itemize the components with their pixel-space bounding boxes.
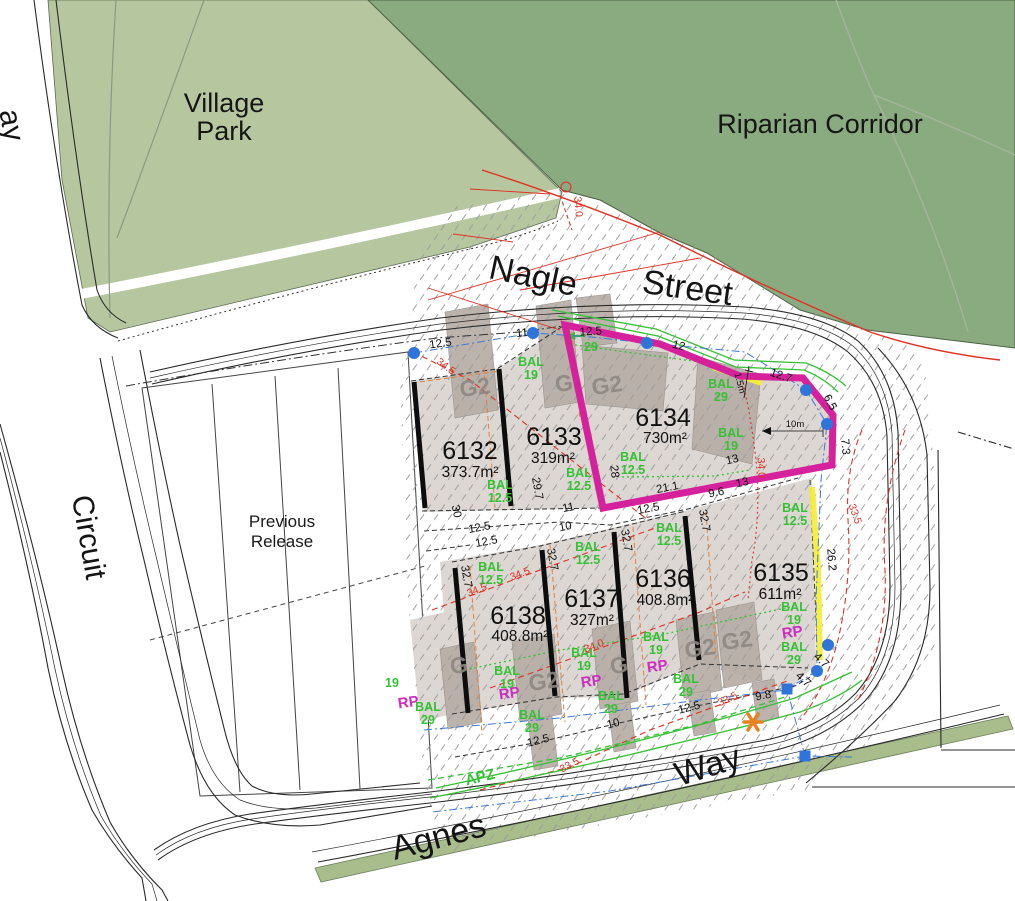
rp-label: RP [781,623,804,643]
lot-6134-number: 6134 [635,404,691,432]
bal-rating-label: BAL [487,478,513,492]
lot-6133-number: 6133 [526,423,582,451]
g2-envelope-label: G2 [458,372,492,402]
lot-6136-area: 408.8m² [637,592,694,609]
bal-rating-value: 29 [604,702,618,716]
survey-point-dot [527,327,539,339]
bal-rating-value: 29 [584,340,598,354]
bal-rating-label: BAL [656,521,682,535]
dimension-label: 12.5 [579,325,602,338]
bal-rating-label: BAL [781,600,807,614]
bal-rating-value: 29 [714,390,728,404]
bal-rating-label: BAL [782,501,808,515]
previous-release-label: Previous [249,512,315,531]
bal-rating-label: BAL [494,664,520,678]
bal-rating-value: 12.5 [783,514,807,528]
bal-rating-label: BAL [673,672,699,686]
lot-6137-number: 6137 [564,585,620,613]
survey-point-dot [821,418,833,430]
lot-6132-number: 6132 [442,437,498,465]
bal-rating-value: 19 [724,439,738,453]
bal-rating-value: 19 [649,643,663,657]
bal-rating-label: BAL [519,708,545,722]
dimension-label: 26.2 [824,548,838,571]
dimension-label: 7.3 [838,438,851,455]
rp-label: RP [498,684,521,704]
circuit-street-label: Circuit [65,493,112,583]
survey-point-dot [822,639,834,651]
bal-rating-label: BAL [718,426,744,440]
lot-6138-number: 6138 [490,602,546,630]
dimension-label: 10 [558,520,573,534]
street-fragment-label: ay [0,107,31,144]
bal-rating-label: BAL [643,630,669,644]
g2-envelope-label: G2 [590,370,624,400]
bal-rating-label: BAL [598,689,624,703]
village-park-label: Park [196,116,252,146]
g2-envelope-label: G [448,651,469,679]
dimension-label: 28 [607,465,620,479]
bal-rating-value: 12.5 [488,491,512,505]
lot-6134-area: 730m² [643,430,687,447]
contour-level-label: 34.0 [754,457,767,478]
bal-rating-value: 12.5 [567,479,591,493]
bal-rating-value: 12.5 [621,463,645,477]
bal-rating-value: 29 [421,713,435,727]
bal-rating-value: 12.5 [657,534,681,548]
g2-envelope-label: G [608,651,629,679]
bal-rating-value: 29 [679,685,693,699]
village-park-label: Village [184,88,265,118]
bal-rating-value: 19 [385,676,399,690]
survey-point-dot [641,337,653,349]
bal-rating-label: BAL [620,450,646,464]
survey-point-square [800,751,811,762]
bal-rating-label: BAL [566,466,592,480]
dim-10m-label: 10m [786,419,805,430]
survey-point-dot [408,347,420,359]
bal-rating-label: BAL [575,540,601,554]
g2-envelope-label: G [553,369,574,397]
bal-rating-label: BAL [518,355,544,369]
previous-release-label: Release [251,532,313,551]
g2-envelope-label: G2 [683,633,717,663]
rp-label: RP [397,693,420,713]
bal-rating-value: 29 [787,653,801,667]
bal-rating-value: 29 [525,721,539,735]
survey-point-dot [800,384,812,396]
rp-label: RP [646,657,669,677]
lot-6137-area: 327m² [570,612,614,629]
bal-rating-value: 12.5 [576,553,600,567]
subdivision-plan: Village Park Riparian Corridor Nagle Str… [0,0,1015,901]
contour-level-label: 34.0 [571,196,585,218]
g2-envelope-label: G2 [720,625,754,655]
bal-rating-label: BAL [708,377,734,391]
riparian-corridor-label: Riparian Corridor [717,109,923,139]
lot-6138-area: 408.8m² [492,628,549,645]
plan-canvas: Village Park Riparian Corridor Nagle Str… [0,0,1015,901]
survey-point-dot [811,665,823,677]
bal-rating-value: 19 [577,659,591,673]
lot-6135-number: 6135 [753,559,809,587]
bal-rating-value: 19 [524,368,538,382]
dimension-label: 11 [561,501,575,515]
survey-point-square [782,684,793,695]
lot-6136-number: 6136 [635,565,691,593]
lot-6133-area: 319m² [531,450,575,467]
rp-label: RP [580,672,603,692]
g2-envelope-label: G2 [527,666,561,696]
bal-rating-label: BAL [478,560,504,574]
